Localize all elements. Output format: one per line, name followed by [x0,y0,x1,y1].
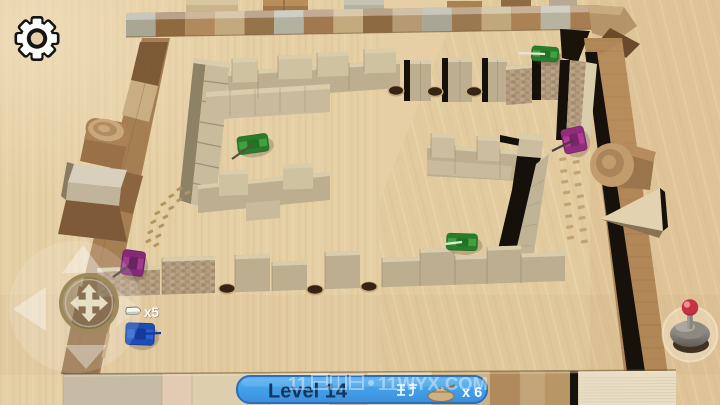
svg-text:Level 14: Level 14 [268,381,348,403]
svg-text:11WYX.COM: 11WYX.COM [378,373,488,394]
svg-text:11: 11 [288,373,308,394]
svg-text:x5: x5 [144,305,160,320]
